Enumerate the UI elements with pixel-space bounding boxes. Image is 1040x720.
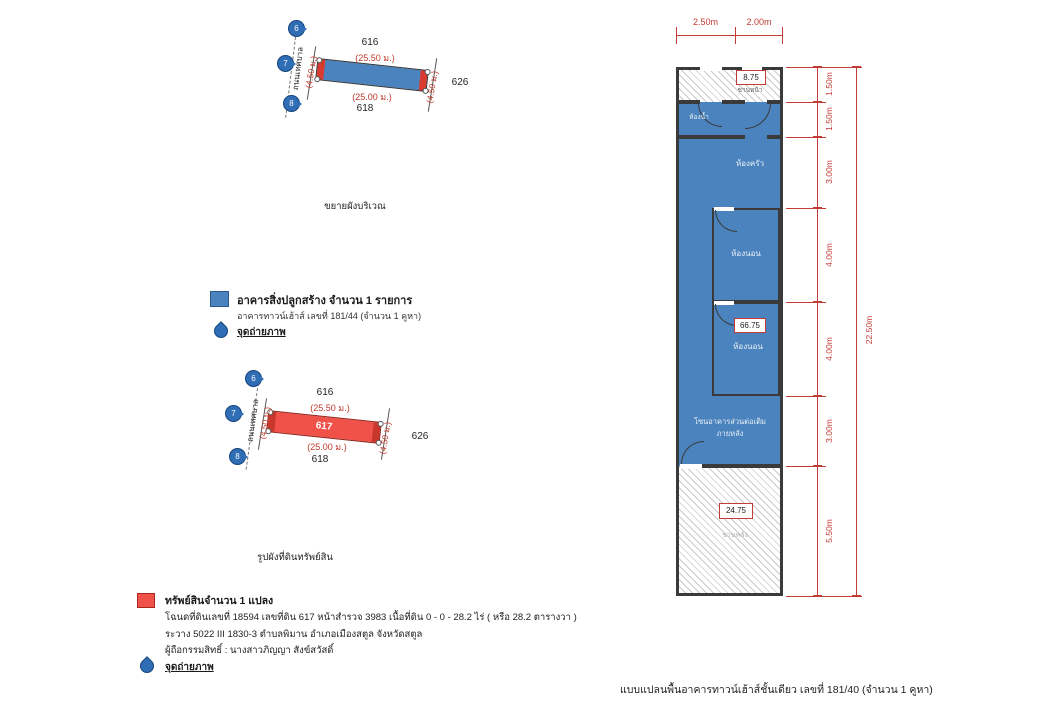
parcel-number-right: 626 (405, 431, 435, 442)
dim-tick (735, 27, 736, 44)
section-dim-line (817, 67, 818, 596)
floor-plan: 8.75 ชานหน้า ห้องน้ำ ห้องครัว ห้องนอน 66… (600, 0, 1040, 720)
property-info: ทรัพย์สินจำนวน 1 แปลง โฉนดที่ดินเลขที่ 1… (0, 585, 560, 685)
bathroom-label: ห้องน้ำ (680, 112, 718, 122)
photo-point-icon (211, 321, 231, 341)
back-area-label: ชานหลัง (719, 530, 751, 541)
enlarged-site-plan: ถนนเทศบาล 6 7 8 616 (25.50 ม.) (25.00 ม.… (0, 0, 520, 230)
enlarged-plan-title: ขยายผังบริเวณ (305, 199, 405, 214)
parcel-number-above: 616 (350, 37, 390, 48)
dim-arrow (813, 395, 822, 397)
dim-arrow (813, 301, 822, 303)
sheet-line: ระวาง 5022 III 1830-3 ตำบลพิมาน อำเภอเมื… (165, 627, 422, 642)
floorplan-caption: แบบแปลนพื้นอาคารทาวน์เฮ้าส์ชั้นเดียว เลข… (620, 681, 933, 698)
land-plan-title: รูปผังที่ดินทรัพย์สิน (235, 550, 355, 565)
top-dim-2: 2.00m (735, 17, 783, 27)
legend-line1: อาคารสิ่งปลูกสร้าง จำนวน 1 รายการ (237, 291, 412, 309)
right-dim-0: 1.50m (824, 65, 834, 103)
top-dim-line (676, 35, 783, 36)
kitchen-label: ห้องครัว (726, 157, 774, 170)
photo-pin: 7 (277, 55, 294, 72)
parcel-number-above: 616 (305, 387, 345, 398)
length-top: (25.50 ม.) (340, 51, 410, 65)
front-area-box: 8.75 (736, 70, 766, 85)
dim-arrow (813, 207, 822, 209)
wall (722, 100, 745, 104)
length-bottom: (25.00 ม.) (292, 440, 362, 454)
building-swatch (210, 291, 229, 307)
parcel-number-below: 618 (345, 103, 385, 114)
dim-arrow (813, 136, 822, 138)
dim-arrow (813, 66, 822, 68)
photo-point-icon (137, 656, 157, 676)
wall (679, 100, 700, 104)
length-top: (25.50 ม.) (295, 401, 365, 415)
property-swatch (137, 593, 155, 608)
length-bottom: (25.00 ม.) (337, 90, 407, 104)
building-legend: อาคารสิ่งปลูกสร้าง จำนวน 1 รายการ อาคารท… (0, 280, 520, 350)
bedroom2-label: ห้องนอน (724, 340, 772, 353)
deed-line: โฉนดที่ดินเลขที่ 18594 เลขที่ดิน 617 หน้… (165, 610, 577, 625)
extension-label-line2: ภายหลัง (681, 428, 779, 440)
top-dim-1: 2.50m (676, 17, 735, 27)
parcel-number-below: 618 (300, 454, 340, 465)
photo-pin: 8 (229, 448, 246, 465)
appraisal-document-page: ถนนเทศบาล 6 7 8 616 (25.50 ม.) (25.00 ม.… (0, 0, 1040, 720)
right-dim-2: 3.00m (824, 153, 834, 191)
dim-arrow (852, 595, 861, 597)
gate-opening (700, 66, 722, 71)
dim-arrow (813, 101, 822, 103)
ext-line (786, 596, 862, 597)
legend-line2: อาคารทาวน์เฮ้าส์ เลขที่ 181/44 (จำนวน 1 … (237, 309, 421, 323)
overall-dim-label: 22.50m (864, 310, 874, 350)
photo-pin: 6 (288, 20, 305, 37)
dim-tick (676, 27, 677, 44)
dim-arrow (813, 465, 822, 467)
wall (702, 464, 780, 468)
overall-dim-line (856, 67, 857, 596)
right-dim-6: 5.50m (824, 512, 834, 550)
main-area-box: 66.75 (734, 318, 766, 333)
land-plot-plan: ถนนเทศบาล 6 7 8 617 616 (25.50 ม.) (25.0… (0, 360, 520, 570)
right-dim-3: 4.00m (824, 236, 834, 274)
photo-point-label: จุดถ่ายภาพ (165, 660, 214, 675)
dim-tick (782, 27, 783, 44)
wall (679, 135, 745, 139)
dim-arrow (852, 66, 861, 68)
parcel-number-right: 626 (445, 77, 475, 88)
right-dim-5: 3.00m (824, 412, 834, 450)
property-heading: ทรัพย์สินจำนวน 1 แปลง (165, 592, 273, 609)
land-strip: 617 (266, 410, 382, 444)
extension-label-line1: โซนอาคารส่วนต่อเติม (681, 416, 779, 428)
parcel-number-inside: 617 (315, 420, 333, 433)
owner-line: ผู้ถือกรรมสิทธิ์ : นางสาวภิญญา สังข์สวัส… (165, 643, 333, 658)
photo-pin: 6 (245, 370, 262, 387)
photo-pin: 8 (283, 95, 300, 112)
back-area-box: 24.75 (719, 503, 753, 519)
photo-point-label: จุดถ่ายภาพ (237, 325, 286, 340)
front-area-label: ชานหน้า (728, 85, 772, 95)
bedroom1-label: ห้องนอน (722, 247, 770, 260)
right-dim-1: 1.50m (824, 100, 834, 138)
right-dim-4: 4.00m (824, 330, 834, 368)
door-opening (680, 464, 702, 469)
photo-pin: 7 (225, 405, 242, 422)
wall (767, 135, 780, 139)
dim-arrow (813, 595, 822, 597)
